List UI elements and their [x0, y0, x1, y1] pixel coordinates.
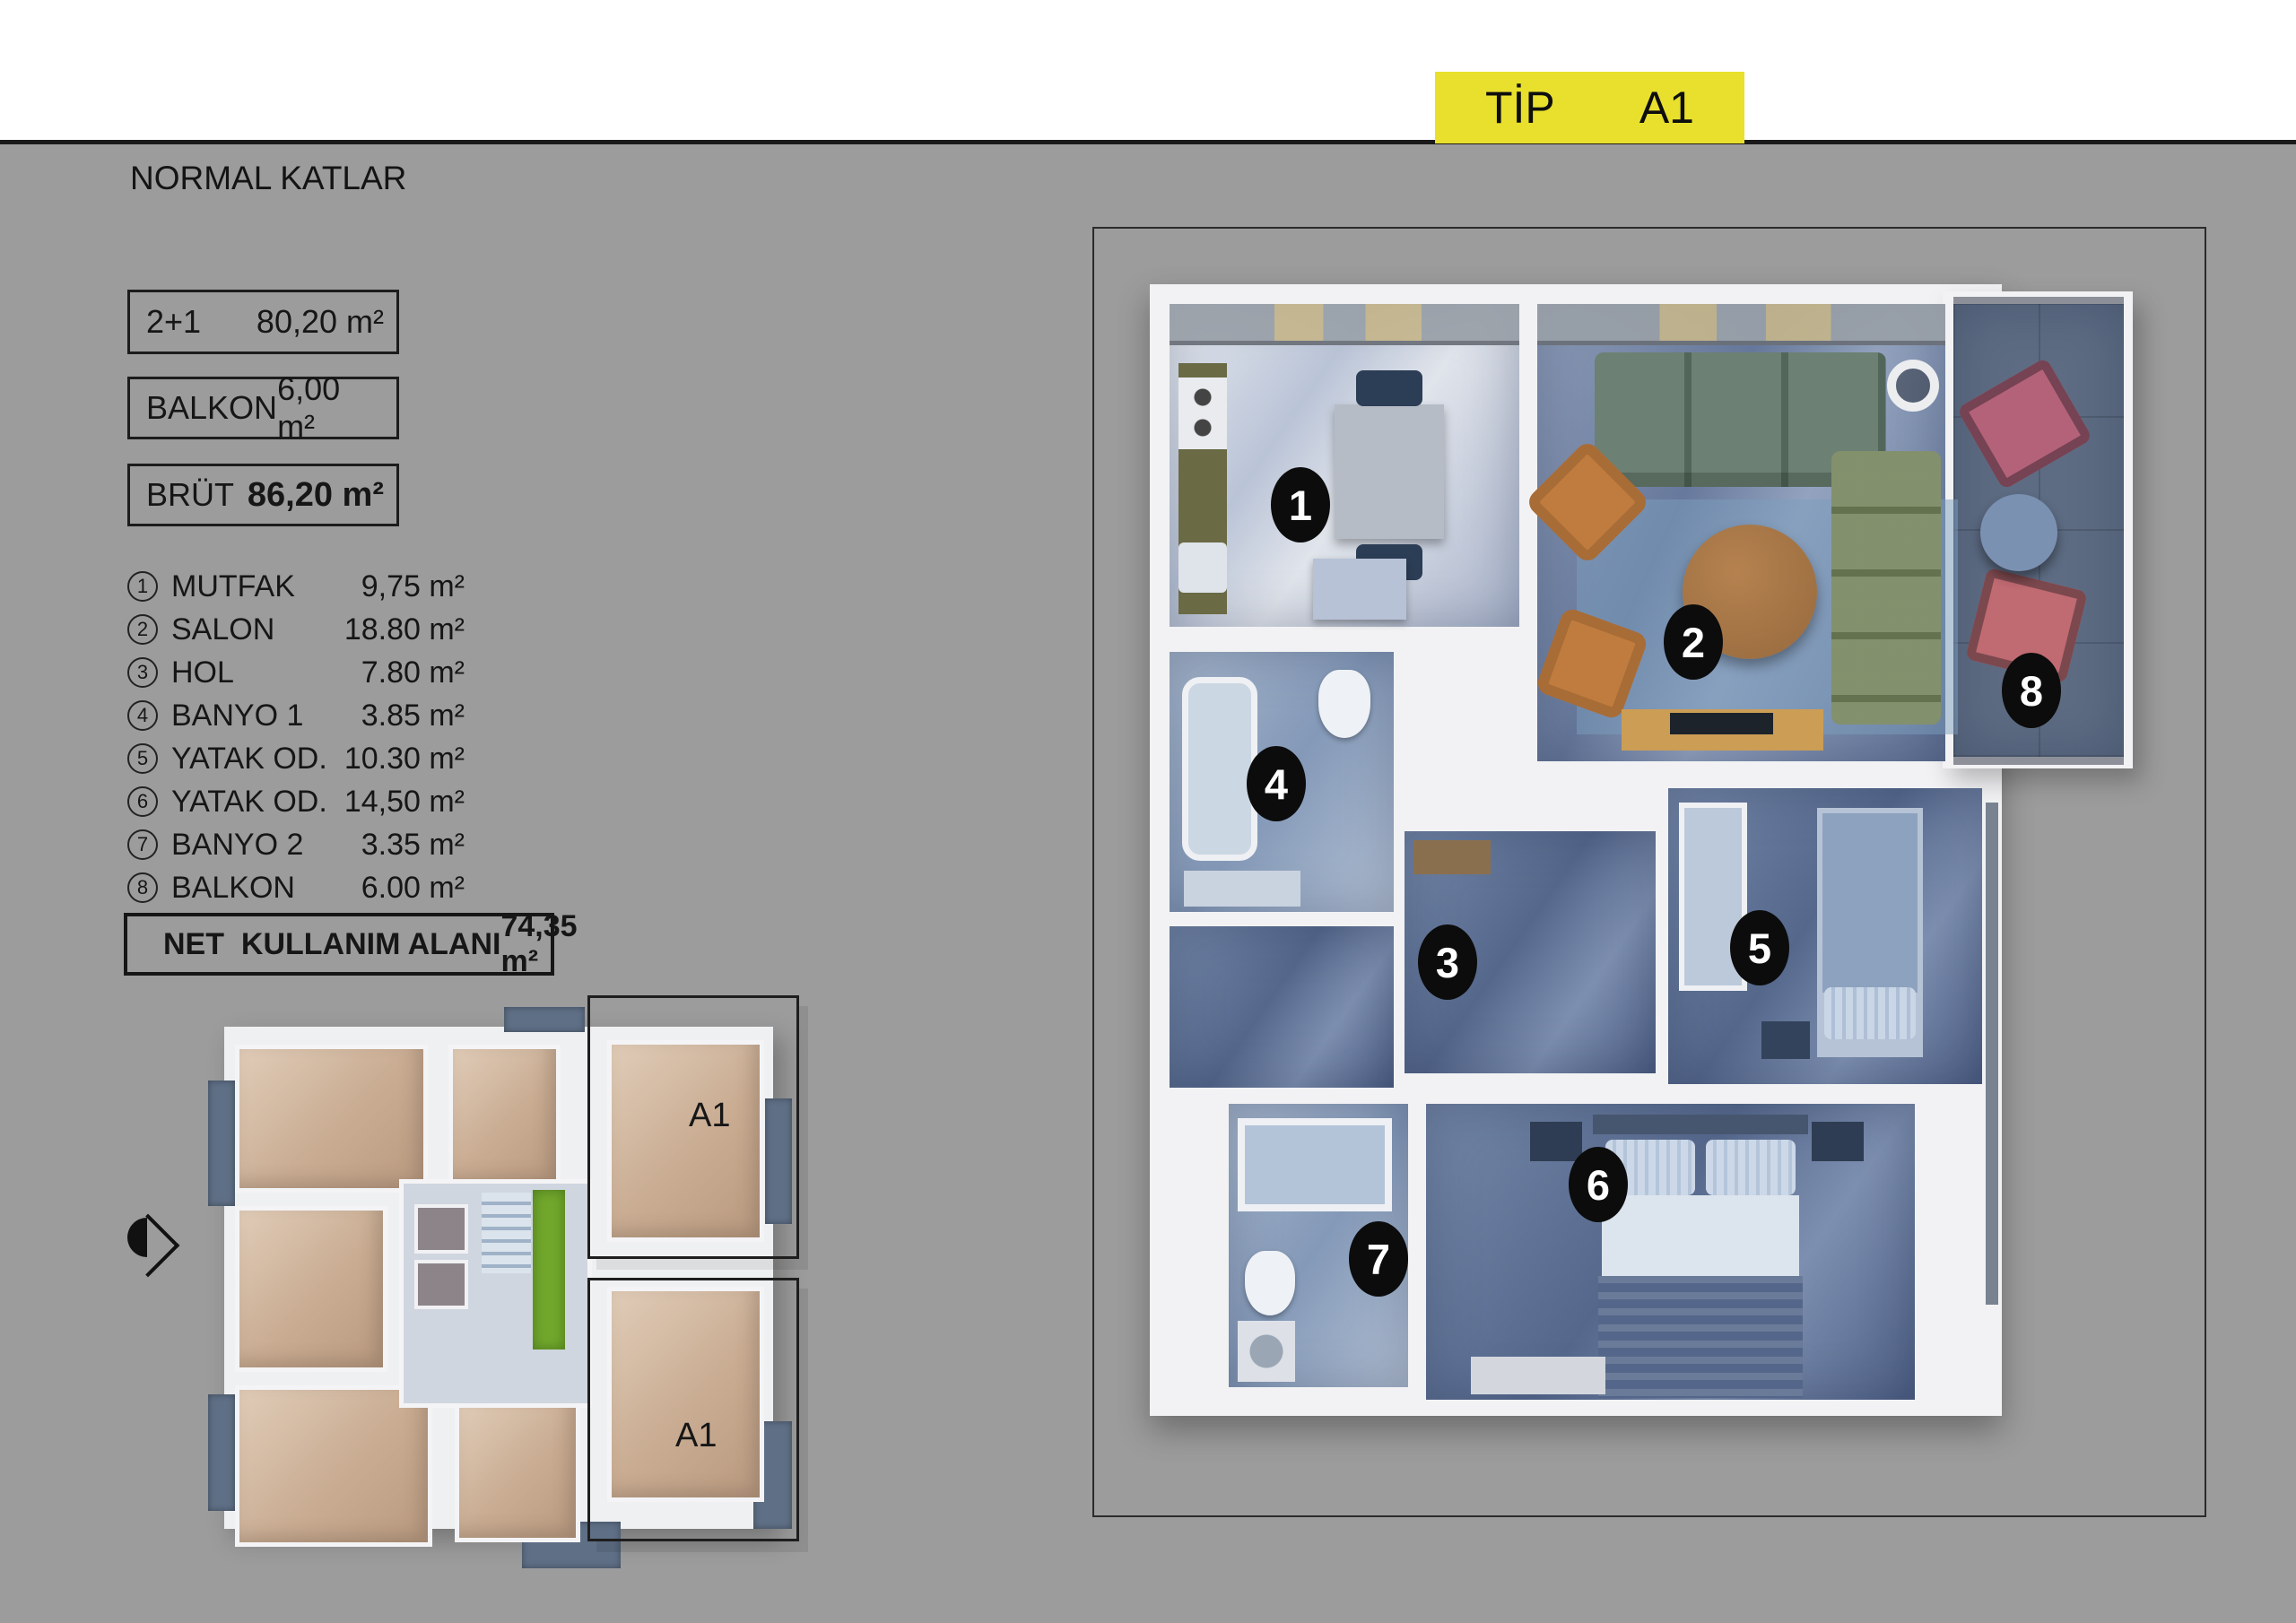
- room-area: 3.85 m²: [339, 699, 465, 733]
- kitchen-window: [1170, 304, 1519, 345]
- key-plan-room: [455, 1399, 580, 1542]
- nightstand: [1812, 1122, 1864, 1161]
- bed-sheet: [1602, 1195, 1799, 1278]
- room-name: HOL: [171, 655, 339, 690]
- key-plan-balcony: [208, 1394, 235, 1511]
- room-area: 9,75 m²: [339, 569, 465, 604]
- key-plan-room: [448, 1045, 561, 1188]
- room-row: 2 SALON 18.80 m²: [127, 608, 465, 651]
- entry-room: [1170, 926, 1394, 1088]
- side-window-strip: [1986, 803, 1998, 1305]
- balcony-area-value: 6,00 m²: [277, 370, 384, 446]
- gross-area-value: 86,20 m²: [248, 476, 384, 515]
- key-plan-room: [235, 1385, 432, 1547]
- key-plan-balcony: [504, 1007, 585, 1032]
- unit-label: A1: [689, 1097, 730, 1135]
- bathtub: [1182, 677, 1257, 861]
- headboard: [1593, 1115, 1808, 1134]
- key-plan-stairs: [482, 1193, 531, 1273]
- badge-type-value: A1: [1639, 82, 1694, 134]
- marker-kitchen: 1: [1271, 467, 1330, 542]
- room-area: 14,50 m²: [339, 785, 465, 820]
- livingroom-window: [1537, 304, 1945, 345]
- type-badge: TİP A1: [1435, 72, 1744, 143]
- key-plan-room: [235, 1206, 387, 1372]
- room-name: MUTFAK: [171, 569, 339, 604]
- room-number-badge: 7: [127, 829, 158, 860]
- marker-salon: 2: [1664, 604, 1723, 680]
- gross-area-box: BRÜT 86,20 m²: [127, 464, 399, 526]
- vanity: [1184, 871, 1300, 907]
- marker-bath2: 7: [1349, 1221, 1408, 1297]
- room-row: 4 BANYO 1 3.85 m²: [127, 694, 465, 737]
- balcony-table: [1980, 494, 2057, 571]
- room-name: BALKON: [171, 871, 339, 906]
- dresser: [1471, 1357, 1605, 1394]
- room-area: 18.80 m²: [339, 612, 465, 647]
- plan-type-box: 2+1 80,20 m²: [127, 290, 399, 354]
- marker-bedroom2: 6: [1569, 1147, 1628, 1222]
- single-bed-mattress: [1822, 813, 1918, 993]
- key-plan-room: [235, 1045, 428, 1193]
- washing-machine: [1238, 1321, 1295, 1382]
- hall-console: [1413, 840, 1491, 874]
- balcony-area-box: BALKON 6,00 m²: [127, 377, 399, 439]
- floor-lamp: [1887, 360, 1939, 412]
- room-number-badge: 4: [127, 700, 158, 731]
- room-row: 5 YATAK OD. 10.30 m²: [127, 737, 465, 780]
- room-schedule: 1 MUTFAK 9,75 m² 2 SALON 18.80 m² 3 HOL …: [127, 565, 465, 909]
- room-number-badge: 1: [127, 571, 158, 602]
- key-plan-unit-top: A1: [587, 995, 799, 1259]
- room-name: YATAK OD.: [171, 742, 339, 777]
- room-name: BANYO 2: [171, 828, 339, 863]
- net-area-box: NET KULLANIM ALANI 74,35 m²: [124, 913, 554, 976]
- kitchen-sink: [1178, 542, 1227, 593]
- pillow: [1706, 1140, 1796, 1195]
- key-plan-elevator: [414, 1260, 468, 1309]
- room-row: 8 BALKON 6.00 m²: [127, 866, 465, 909]
- balcony-rail: [1953, 297, 2124, 304]
- room-area: 10.30 m²: [339, 742, 465, 777]
- toilet: [1245, 1251, 1295, 1315]
- toilet: [1318, 670, 1370, 738]
- marker-balcony: 8: [2002, 653, 2061, 728]
- key-plan-garden: [533, 1190, 565, 1350]
- key-plan-unit-bottom: A1: [587, 1278, 799, 1541]
- shower-tub: [1238, 1118, 1392, 1211]
- dining-table: [1335, 404, 1444, 539]
- net-area-label: NET KULLANIM ALANI: [163, 927, 500, 962]
- room-number-badge: 3: [127, 657, 158, 688]
- dining-chair: [1356, 370, 1422, 406]
- room-row: 6 YATAK OD. 14,50 m²: [127, 780, 465, 823]
- plan-type-value: 80,20 m²: [257, 303, 384, 341]
- header-band: [0, 0, 2296, 144]
- plan-type-label: 2+1: [146, 303, 201, 341]
- room-number-badge: 5: [127, 743, 158, 774]
- room-number-badge: 8: [127, 872, 158, 903]
- floor-subtitle: NORMAL KATLAR: [130, 160, 406, 197]
- tv: [1670, 713, 1773, 734]
- key-plan-elevator: [414, 1204, 468, 1254]
- room-number-badge: 2: [127, 614, 158, 645]
- marker-hall: 3: [1418, 924, 1477, 1000]
- marker-bedroom1: 5: [1730, 910, 1789, 985]
- page: A1 BLOK TİP A1 NORMAL KATLAR 2+1 80,20 m…: [0, 0, 2296, 1623]
- room-area: 6.00 m²: [339, 871, 465, 906]
- key-plan-balcony: [208, 1081, 235, 1206]
- nightstand: [1761, 1021, 1810, 1059]
- sofa-secondary: [1831, 451, 1941, 725]
- room-name: YATAK OD.: [171, 785, 339, 820]
- balcony-area-label: BALKON: [146, 389, 277, 427]
- room-area: 3.35 m²: [339, 828, 465, 863]
- marker-bath1: 4: [1247, 746, 1306, 821]
- room-name: BANYO 1: [171, 699, 339, 733]
- room-row: 7 BANYO 2 3.35 m²: [127, 823, 465, 866]
- pillow: [1824, 987, 1916, 1039]
- north-arrow-chevron: [117, 1214, 180, 1278]
- north-arrow-icon: [115, 1200, 187, 1275]
- room-name: SALON: [171, 612, 339, 647]
- gross-area-label: BRÜT: [146, 476, 234, 514]
- balcony-rail: [1953, 757, 2124, 765]
- room-row: 3 HOL 7.80 m²: [127, 651, 465, 694]
- room-row: 1 MUTFAK 9,75 m²: [127, 565, 465, 608]
- stove: [1178, 378, 1227, 449]
- unit-label: A1: [675, 1417, 717, 1455]
- net-area-value: 74,35 m²: [500, 909, 577, 979]
- badge-type-label: TİP: [1485, 82, 1555, 134]
- room-area: 7.80 m²: [339, 655, 465, 690]
- fridge: [1313, 559, 1406, 620]
- room-number-badge: 6: [127, 786, 158, 817]
- floor-plan-frame: 1 2 3 4 5 6 7 8: [1092, 227, 2206, 1517]
- nightstand: [1530, 1122, 1582, 1161]
- duvet: [1598, 1276, 1803, 1398]
